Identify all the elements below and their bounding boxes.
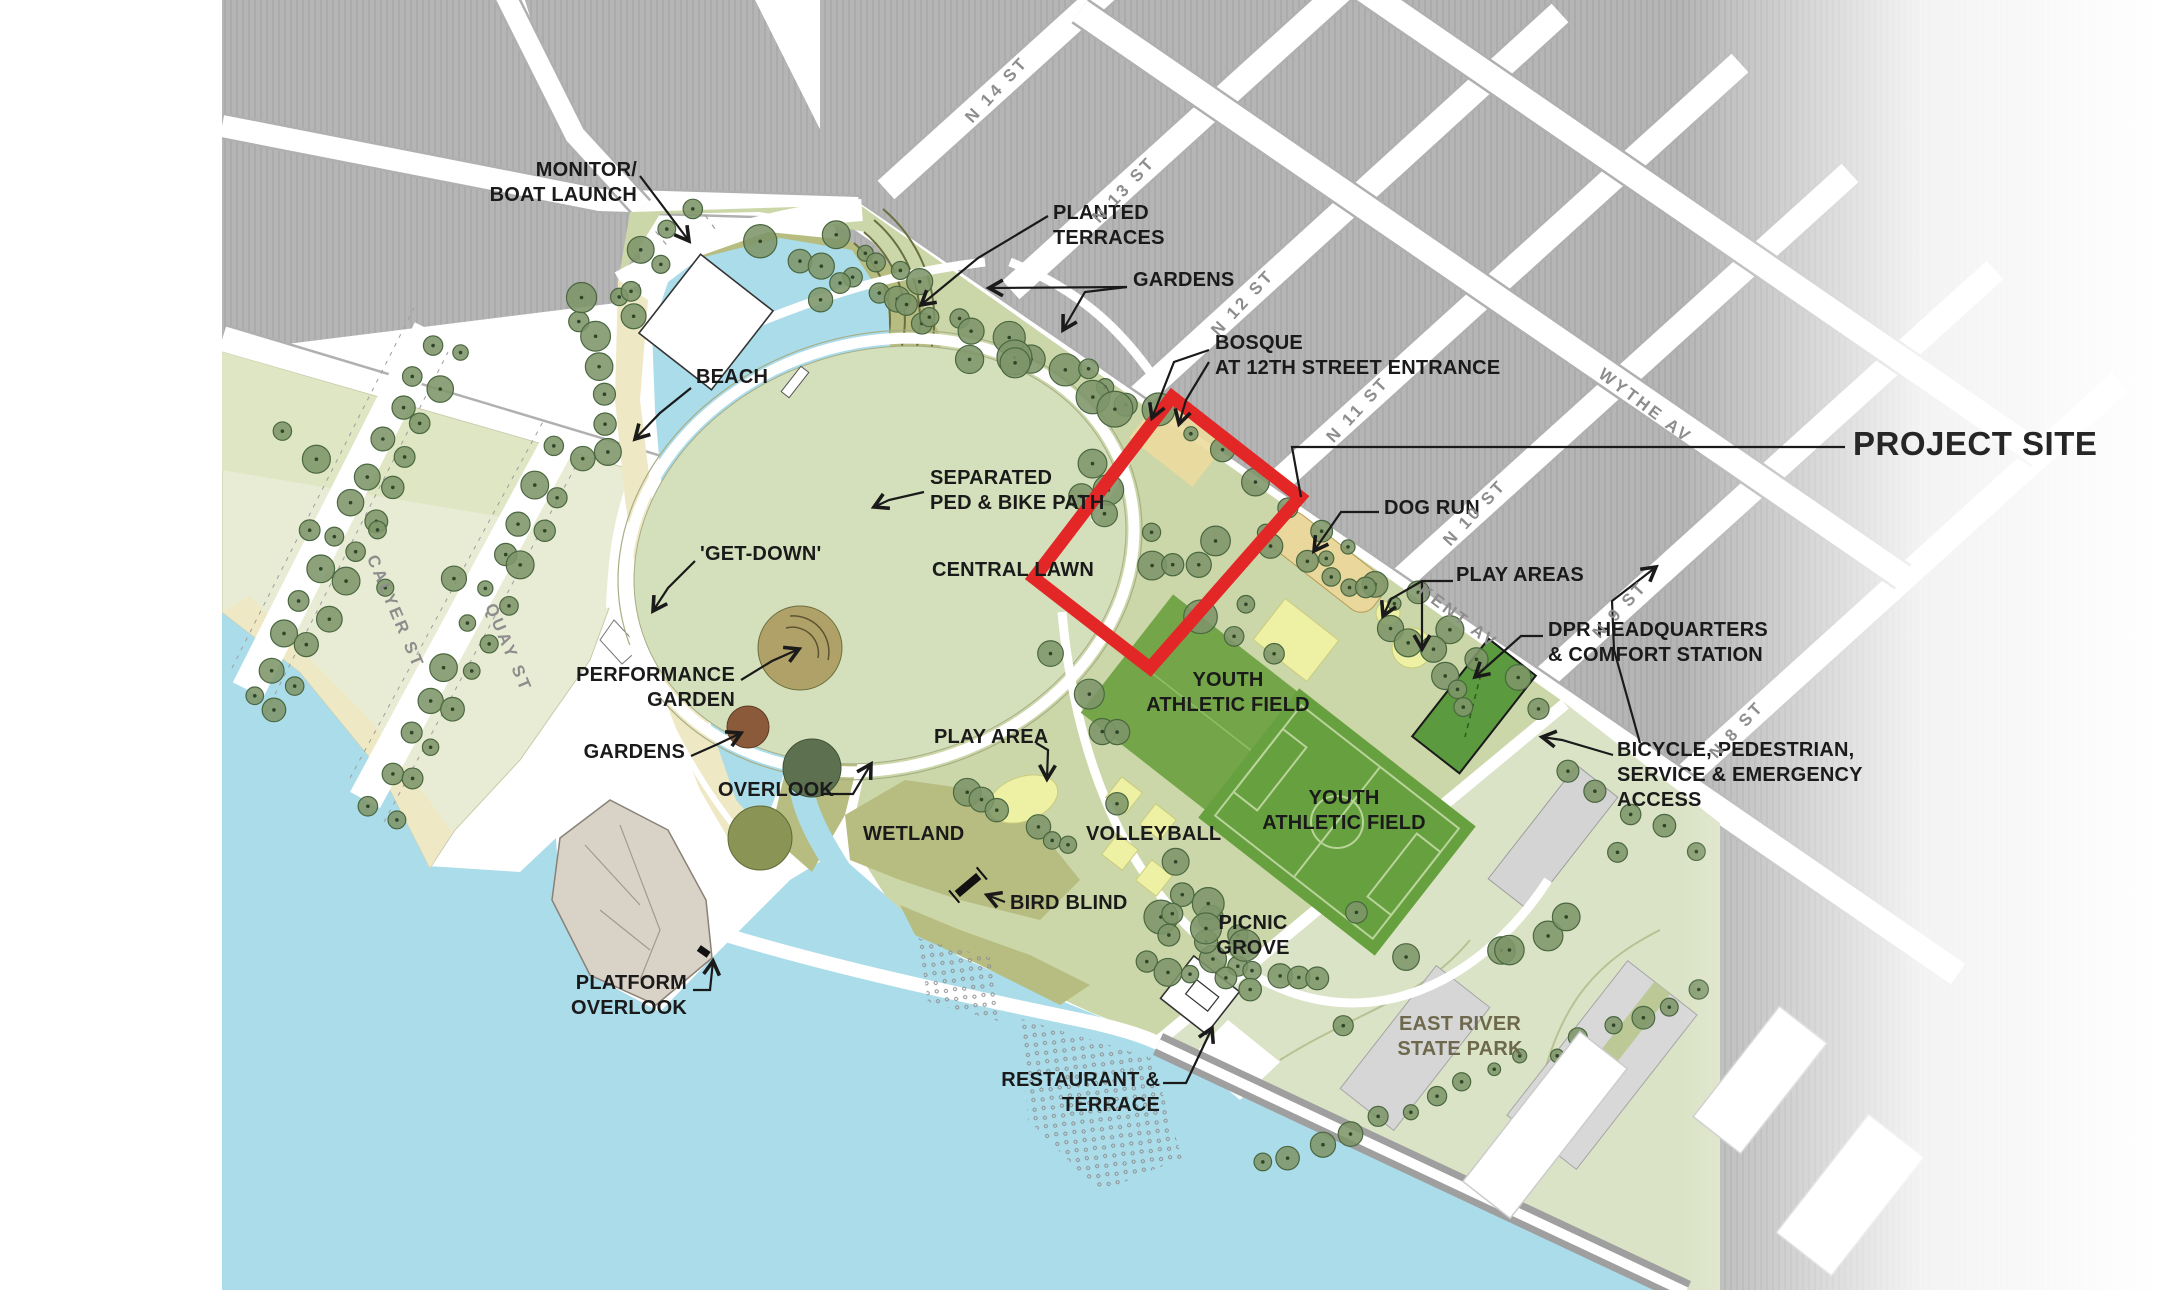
tree-icon	[1393, 944, 1420, 971]
tree-icon	[652, 255, 670, 273]
tree-icon	[955, 345, 983, 373]
tree-icon	[1653, 814, 1676, 837]
tree-icon	[958, 318, 984, 344]
tree-icon	[459, 615, 475, 631]
tree-icon	[418, 688, 443, 713]
tree-icon	[1158, 924, 1180, 946]
tree-icon	[867, 253, 886, 272]
tree-icon	[1620, 804, 1640, 824]
tree-icon	[1000, 348, 1030, 378]
tree-icon	[1043, 832, 1060, 849]
tree-icon	[1276, 1146, 1299, 1169]
tree-icon	[1368, 1106, 1388, 1126]
tree-icon	[1660, 998, 1678, 1016]
tree-icon	[441, 566, 466, 591]
tree-icon	[1306, 967, 1329, 990]
tree-icon	[332, 567, 360, 595]
tree-icon	[307, 555, 335, 583]
tree-icon	[382, 763, 403, 784]
tree-icon	[423, 336, 442, 355]
tree-icon	[593, 383, 615, 405]
tree-icon	[1346, 902, 1368, 924]
tree-icon	[1239, 978, 1261, 1000]
tree-icon	[478, 581, 493, 596]
tree-icon	[1453, 1073, 1471, 1091]
tree-icon	[369, 521, 387, 539]
tree-icon	[463, 663, 480, 680]
tree-icon	[1237, 596, 1255, 614]
tree-icon	[1557, 760, 1579, 782]
tree-icon	[1448, 680, 1466, 698]
map-canvas	[0, 0, 2162, 1290]
tree-icon	[1338, 1122, 1363, 1147]
tree-icon	[1341, 540, 1355, 554]
tree-icon	[1605, 1017, 1622, 1034]
tree-icon	[1319, 551, 1334, 566]
tree-icon	[1162, 848, 1189, 875]
tree-icon	[571, 446, 595, 470]
tree-icon	[534, 520, 555, 541]
tree-icon	[480, 635, 498, 653]
tree-icon	[1394, 629, 1422, 657]
tree-icon	[337, 489, 363, 515]
tree-icon	[382, 476, 404, 498]
tree-icon	[1079, 359, 1099, 379]
tree-icon	[506, 512, 530, 536]
tree-icon	[1105, 719, 1130, 744]
tree-icon	[1184, 427, 1198, 441]
tree-icon	[581, 321, 611, 351]
tree-icon	[822, 221, 850, 249]
tree-icon	[1254, 1153, 1272, 1171]
tree-icon	[920, 308, 939, 327]
tree-icon	[744, 225, 777, 258]
leader-gardens-upper-1	[989, 287, 1127, 288]
tree-icon	[627, 236, 654, 263]
tree-icon	[1333, 1016, 1353, 1036]
tree-icon	[271, 620, 298, 647]
tree-icon	[262, 698, 286, 722]
tree-icon	[1495, 935, 1524, 964]
tree-icon	[1310, 1132, 1335, 1157]
site-plan-map: MONITOR/ BOAT LAUNCHPLANTED TERRACESGARD…	[0, 0, 2162, 1290]
tree-icon	[1513, 1049, 1527, 1063]
tree-icon	[358, 796, 377, 815]
tree-icon	[325, 527, 344, 546]
tree-icon	[1224, 627, 1244, 647]
tree-icon	[453, 345, 468, 360]
tree-icon	[377, 579, 394, 596]
tree-icon	[896, 294, 918, 316]
tree-icon	[985, 799, 1008, 822]
tree-icon	[409, 413, 429, 433]
tree-icon	[1038, 641, 1064, 667]
tree-icon	[891, 261, 909, 279]
tree-icon	[401, 722, 422, 743]
left-margin	[0, 0, 222, 1290]
tree-icon	[1181, 966, 1198, 983]
tree-icon	[317, 606, 343, 632]
tree-icon	[1201, 526, 1231, 556]
tree-icon	[683, 199, 702, 218]
tree-icon	[1243, 961, 1261, 979]
tree-icon	[500, 597, 519, 616]
tree-icon	[1264, 644, 1284, 664]
tree-icon	[1097, 391, 1133, 427]
tree-icon	[506, 551, 534, 579]
tree-icon	[1454, 698, 1473, 717]
tree-icon	[585, 353, 613, 381]
tree-icon	[830, 273, 851, 294]
tree-icon	[1322, 568, 1340, 586]
tree-icon	[346, 542, 365, 561]
tree-icon	[285, 677, 303, 695]
tree-icon	[1215, 967, 1237, 989]
tree-icon	[1191, 913, 1222, 944]
tree-icon	[441, 697, 465, 721]
tree-icon	[658, 220, 676, 238]
tree-icon	[1078, 449, 1107, 478]
tree-icon	[273, 422, 291, 440]
tree-icon	[1154, 958, 1182, 986]
tree-icon	[1059, 836, 1076, 853]
tree-icon	[1162, 554, 1184, 576]
tree-icon	[1505, 665, 1531, 691]
tree-icon	[566, 282, 596, 312]
tree-icon	[354, 464, 380, 490]
tree-icon	[299, 520, 320, 541]
tree-icon	[547, 488, 567, 508]
tree-icon	[394, 447, 415, 468]
tree-icon	[294, 633, 318, 657]
tree-icon	[594, 413, 616, 435]
tree-icon	[1528, 698, 1549, 719]
tree-icon	[1420, 636, 1446, 662]
tree-icon	[392, 396, 415, 419]
tree-icon	[1162, 903, 1183, 924]
tree-icon	[1106, 793, 1128, 815]
tree-icon	[388, 811, 406, 829]
tree-icon	[1427, 1087, 1446, 1106]
tree-icon	[907, 269, 933, 295]
tree-icon	[427, 376, 453, 402]
tree-icon	[259, 658, 284, 683]
tree-icon	[1632, 1006, 1655, 1029]
tree-icon	[1403, 1105, 1418, 1120]
tree-icon	[371, 427, 395, 451]
tree-icon	[621, 304, 646, 329]
tree-icon	[621, 282, 641, 302]
tree-icon	[808, 288, 832, 312]
tree-icon	[246, 687, 264, 705]
tree-icon	[1049, 354, 1081, 386]
tree-icon	[1608, 842, 1628, 862]
tree-icon	[1552, 903, 1580, 931]
tree-icon	[1143, 523, 1161, 541]
tree-icon	[1584, 780, 1606, 802]
tree-icon	[594, 439, 621, 466]
tree-icon	[1488, 1063, 1501, 1076]
fade-right-overlay	[1680, 0, 2162, 1290]
tree-icon	[1296, 550, 1318, 572]
tree-icon	[521, 471, 549, 499]
tree-icon	[544, 436, 563, 455]
tree-icon	[422, 739, 438, 755]
tree-icon	[1186, 552, 1211, 577]
tree-icon	[403, 367, 422, 386]
tree-icon	[302, 445, 330, 473]
tree-icon	[1074, 679, 1104, 709]
tree-icon	[402, 768, 423, 789]
tree-icon	[1355, 577, 1376, 598]
tree-icon	[430, 654, 458, 682]
tree-icon	[1229, 930, 1261, 962]
tree-icon	[808, 253, 834, 279]
tree-icon	[288, 591, 309, 612]
